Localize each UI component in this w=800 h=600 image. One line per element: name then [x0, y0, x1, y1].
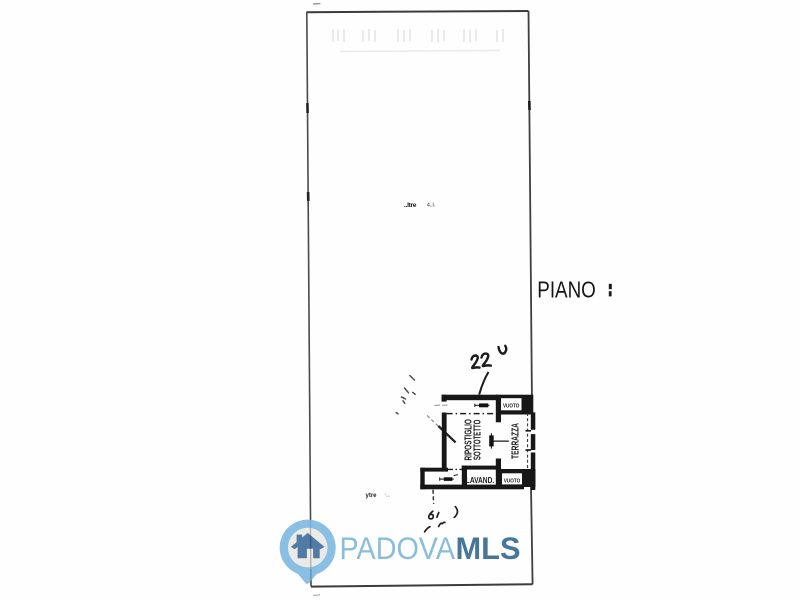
svg-text:MLS: MLS — [456, 530, 521, 566]
svg-text:VUOTO: VUOTO — [503, 404, 520, 410]
svg-text:'...: '... — [385, 493, 390, 498]
svg-text:LAVAND.: LAVAND. — [466, 475, 494, 485]
svg-text:PADOVA: PADOVA — [340, 530, 456, 566]
svg-text:..ltre: ..ltre — [404, 202, 417, 209]
svg-text:SOTTOTETTO: SOTTOTETTO — [473, 420, 484, 461]
svg-text:4..l.: 4..l. — [427, 202, 436, 208]
svg-text:TERRAZZA: TERRAZZA — [511, 423, 522, 459]
svg-text:PIANO: PIANO — [537, 277, 596, 303]
svg-text:VUOTO: VUOTO — [504, 478, 521, 484]
svg-text:ytre: ytre — [366, 493, 378, 499]
